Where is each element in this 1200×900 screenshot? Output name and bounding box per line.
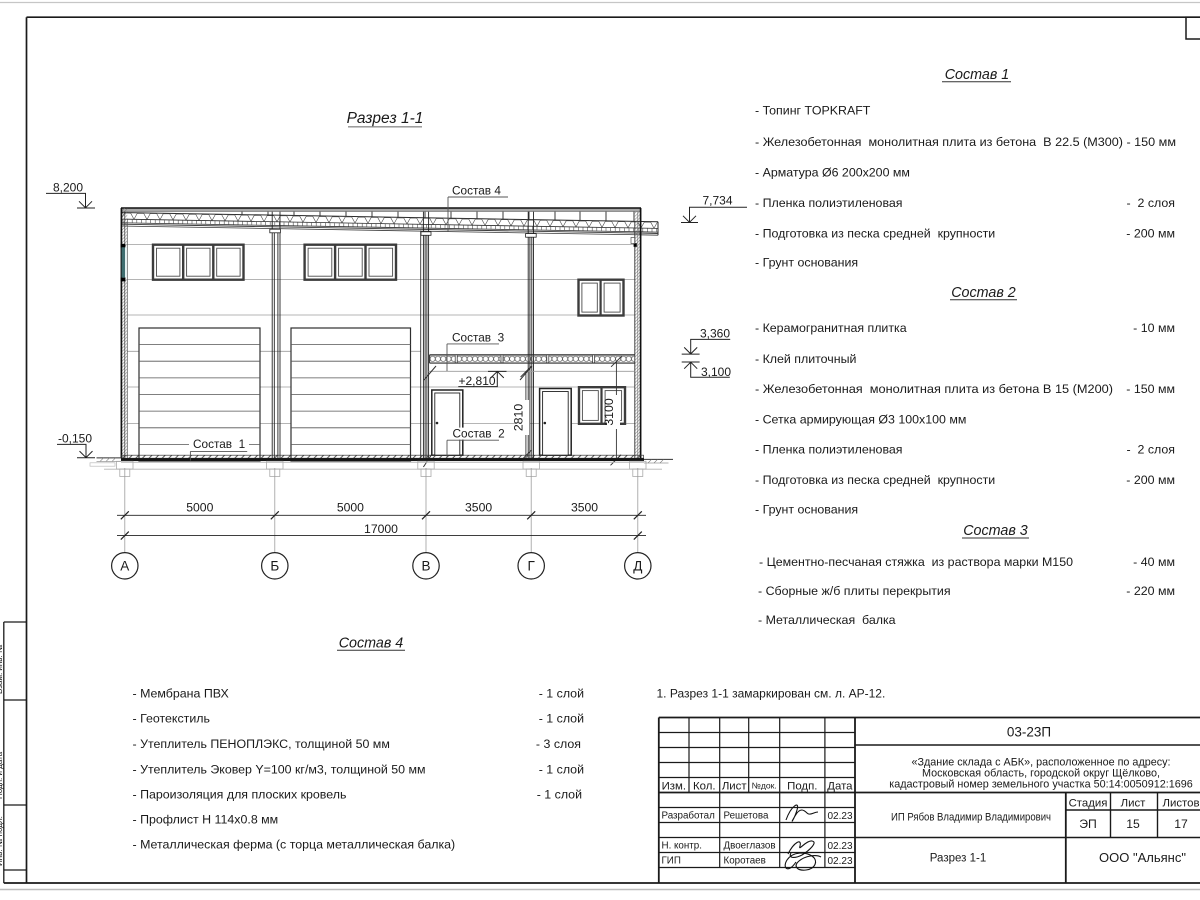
svg-text:Состав 1: Состав 1 [193,437,245,451]
svg-text:02.23: 02.23 [827,856,852,867]
svg-text:- 1 слой: - 1 слой [539,712,584,726]
svg-text:- Сетка армирующая Ø3 100х100: - Сетка армирующая Ø3 100х100 мм [755,413,966,427]
svg-text:5000: 5000 [337,501,364,515]
svg-text:- Железобетонная монолитная п: - Железобетонная монолитная плита из бет… [755,135,1176,149]
svg-text:А: А [120,559,129,574]
svg-text:Б: Б [270,559,279,574]
svg-text:Состав 1: Состав 1 [945,67,1010,83]
svg-text:- Клей плиточный: - Клей плиточный [755,352,856,366]
svg-text:Кол.: Кол. [693,781,716,793]
svg-text:17000: 17000 [364,522,398,536]
svg-text:Подп.: Подп. [787,781,817,793]
svg-text:- Грунт основания: - Грунт основания [755,256,858,270]
svg-text:- Металлическая балка: - Металлическая балка [758,613,896,627]
svg-text:-0,150: -0,150 [58,432,92,446]
svg-text:Разрез 1-1: Разрез 1-1 [347,110,424,127]
svg-text:17: 17 [1174,817,1188,831]
svg-text:7,734: 7,734 [703,194,733,208]
svg-text:15: 15 [1126,817,1140,831]
svg-text:- 2 слоя: - 2 слоя [1126,196,1175,210]
svg-text:Г: Г [528,559,536,574]
svg-text:- Утеплитель Эковер Y=100 кг/м: - Утеплитель Эковер Y=100 кг/м3, толщино… [133,763,426,777]
svg-text:- Профлист Н 114х0.8 мм: - Профлист Н 114х0.8 мм [133,813,279,827]
svg-text:- 200 мм: - 200 мм [1126,473,1175,487]
svg-text:Коротаев: Коротаев [724,855,766,866]
svg-text:02.23: 02.23 [827,841,852,852]
svg-text:Дата: Дата [827,781,853,793]
svg-text:Лист: Лист [1121,798,1147,810]
svg-text:- Цементно-песчаная стяжка из: - Цементно-песчаная стяжка из раствора м… [759,555,1073,569]
svg-text:3500: 3500 [465,501,492,515]
svg-text:- Арматура Ø6 200х200 мм: - Арматура Ø6 200х200 мм [755,166,910,180]
svg-text:Состав 4: Состав 4 [339,635,404,651]
svg-text:Состав 2: Состав 2 [951,285,1016,301]
svg-text:Листов: Листов [1162,798,1199,810]
svg-text:Решетова: Решетова [724,810,769,821]
svg-text:- Утеплитель ПЕНОПЛЭКС, толщин: - Утеплитель ПЕНОПЛЭКС, толщиной 50 мм [133,737,390,751]
svg-text:Инв. № подл.: Инв. № подл. [0,816,4,866]
svg-text:ООО "Альянс": ООО "Альянс" [1099,850,1186,865]
svg-text:- Подготовка из песка средней: - Подготовка из песка средней крупности [755,227,995,241]
svg-text:№док.: №док. [752,781,777,791]
svg-text:+2,810: +2,810 [459,374,496,388]
svg-text:Стадия: Стадия [1069,798,1108,810]
svg-text:5000: 5000 [186,501,213,515]
svg-text:- Пленка полиэтиленовая: - Пленка полиэтиленовая [755,443,903,457]
svg-text:Состав 3: Состав 3 [452,330,505,344]
svg-text:- Пленка полиэтиленовая: - Пленка полиэтиленовая [755,196,903,210]
svg-text:3500: 3500 [571,501,598,515]
svg-text:ИП Рябов Владимир Владимирович: ИП Рябов Владимир Владимирович [891,812,1051,824]
svg-text:- 3 слоя: - 3 слоя [536,737,581,751]
svg-text:Лист: Лист [722,781,748,793]
svg-text:Разрез 1-1: Разрез 1-1 [930,852,986,864]
svg-text:- 220 мм: - 220 мм [1126,584,1175,598]
svg-text:- 10 мм: - 10 мм [1133,321,1175,335]
svg-text:- Сборные ж/б плиты перекрытия: - Сборные ж/б плиты перекрытия [758,584,951,598]
svg-text:- 2 слоя: - 2 слоя [1126,443,1175,457]
svg-text:- 1 слой: - 1 слой [537,788,582,802]
svg-text:1. Разрез 1-1 замаркирован см.: 1. Разрез 1-1 замаркирован см. л. АР-12. [657,687,886,701]
svg-text:ЭП: ЭП [1079,817,1097,831]
svg-text:Состав 4: Состав 4 [452,183,501,197]
svg-text:- 150 мм: - 150 мм [1126,382,1175,396]
svg-text:- Пароизоляция для плоских кро: - Пароизоляция для плоских кровель [133,788,347,802]
svg-text:- 200 мм: - 200 мм [1126,227,1175,241]
svg-text:2810: 2810 [512,404,526,432]
svg-text:- Грунт основания: - Грунт основания [755,503,858,517]
svg-text:- Железобетонная монолитная п: - Железобетонная монолитная плита из бет… [755,382,1113,396]
svg-text:Н. контр.: Н. контр. [662,840,702,851]
svg-text:3,360: 3,360 [700,326,730,340]
svg-text:- 40 мм: - 40 мм [1133,555,1175,569]
svg-text:Подп. и дата: Подп. и дата [0,751,4,799]
svg-text:Двоеглазов: Двоеглазов [724,840,776,851]
svg-text:ГИП: ГИП [662,855,681,866]
svg-text:Изм.: Изм. [662,781,686,793]
svg-text:- Геотекстиль: - Геотекстиль [133,712,210,726]
svg-text:Состав 2: Состав 2 [453,427,505,441]
svg-text:02.23: 02.23 [827,811,852,822]
svg-text:Д: Д [633,559,642,574]
svg-text:Разработал: Разработал [662,810,716,821]
svg-text:- Металлическая ферма (с торца: - Металлическая ферма (с торца металличе… [133,838,456,852]
svg-text:3100: 3100 [602,398,616,426]
svg-text:- Топинг TOPKRAFT: - Топинг TOPKRAFT [755,104,871,118]
svg-text:кадастровый номер земельного у: кадастровый номер земельного участка 50:… [889,779,1192,791]
svg-text:- Подготовка из песка средней: - Подготовка из песка средней крупности [755,473,995,487]
svg-text:В: В [421,559,430,574]
svg-text:- 1 слой: - 1 слой [539,687,584,701]
svg-text:Взам. инв. №: Взам. инв. № [0,644,4,694]
svg-text:- 1 слой: - 1 слой [539,763,584,777]
svg-text:8,200: 8,200 [53,180,83,194]
svg-text:03-23П: 03-23П [1007,725,1051,740]
svg-text:Состав 3: Состав 3 [963,523,1028,539]
svg-text:- Керамогранитная плитка: - Керамогранитная плитка [755,321,907,335]
svg-text:- Мембрана ПВХ: - Мембрана ПВХ [133,687,229,701]
